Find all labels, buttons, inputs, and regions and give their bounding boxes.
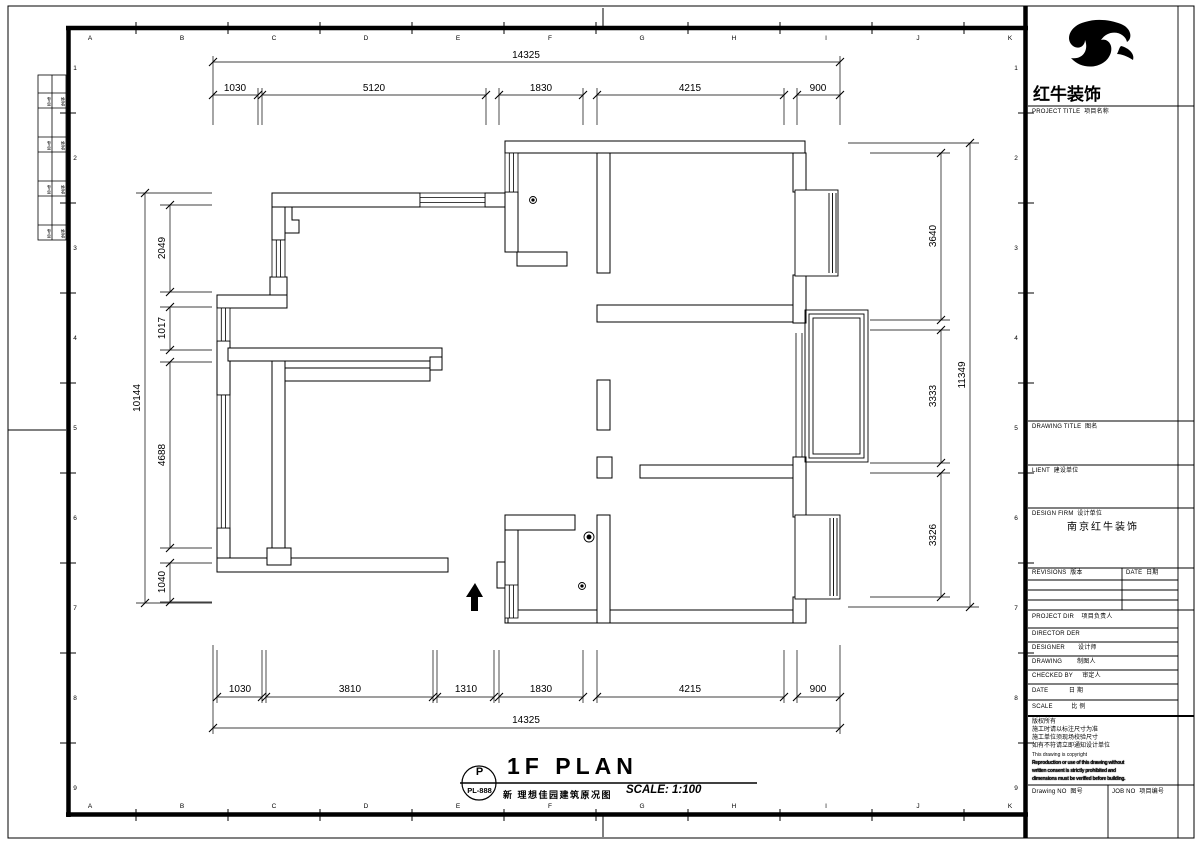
svg-text:900: 900: [810, 83, 827, 94]
copyright-line: 施工单位须现场校验尺寸: [1032, 735, 1098, 742]
project-dir-label: PROJECT DIR 项目负责人: [1032, 614, 1113, 621]
dimension-lines: [136, 56, 979, 734]
signature-cell: 姓名: [53, 94, 66, 108]
svg-text:E: E: [456, 803, 461, 810]
svg-text:4215: 4215: [679, 684, 702, 695]
svg-text:C: C: [272, 35, 277, 42]
title-block-lines: [1028, 6, 1194, 838]
grid-numbers-left: 1 2 3 4 5 6 7 8 9: [73, 65, 77, 792]
copyright-line: 如有不符请立即通知设计单位: [1032, 743, 1110, 750]
svg-text:J: J: [916, 803, 919, 810]
svg-text:G: G: [639, 803, 644, 810]
svg-text:1030: 1030: [229, 684, 252, 695]
svg-text:B: B: [180, 35, 184, 42]
svg-text:D: D: [364, 803, 369, 810]
bay-window-top-right: [795, 190, 838, 276]
plan-walls: [217, 141, 806, 623]
svg-text:B: B: [180, 803, 184, 810]
svg-text:3640: 3640: [928, 224, 939, 247]
scale-label: SCALE 比 例: [1032, 704, 1086, 711]
grid-numbers-right: 1 2 3 4 5 6 7 8 9: [1014, 65, 1018, 792]
svg-text:A: A: [88, 803, 93, 810]
signature-cell: 专业: [39, 138, 52, 152]
dimension-ticks: [141, 58, 974, 732]
copyright-line: written consent is strictly prohibited a…: [1032, 768, 1116, 775]
svg-text:5: 5: [1014, 425, 1018, 432]
dim-left-overall: 10144: [132, 384, 143, 412]
svg-text:3: 3: [1014, 245, 1018, 252]
grid-letters-top: A B C D E F G H I J K: [88, 35, 1013, 42]
svg-text:7: 7: [1014, 605, 1018, 612]
svg-text:4215: 4215: [679, 83, 702, 94]
drawing-title-label: DRAWING TITLE 图名: [1032, 424, 1097, 431]
signature-cell: 专业: [39, 94, 52, 108]
copyright-line: 版权所有: [1032, 719, 1056, 726]
svg-text:1310: 1310: [455, 684, 478, 695]
bay-window-bottom-right: [795, 515, 840, 599]
svg-text:K: K: [1008, 35, 1013, 42]
svg-text:H: H: [732, 803, 737, 810]
fold-marks: [8, 8, 603, 837]
svg-text:4688: 4688: [157, 443, 168, 466]
plan-title: 1F PLAN: [507, 753, 638, 780]
svg-text:I: I: [825, 35, 827, 42]
job-no-label: JOB NO 项目编号: [1112, 789, 1164, 796]
svg-text:G: G: [639, 35, 644, 42]
revision-date-label: DATE 日期: [1126, 570, 1159, 577]
balcony-middle-right: [805, 310, 868, 462]
director-label: DIRECTOR DER: [1032, 631, 1080, 638]
svg-text:1830: 1830: [530, 684, 553, 695]
stamp-code: PL-888: [461, 786, 498, 795]
svg-text:3326: 3326: [928, 523, 939, 546]
svg-text:1830: 1830: [530, 83, 553, 94]
svg-text:E: E: [456, 35, 461, 42]
svg-text:7: 7: [73, 605, 77, 612]
svg-text:J: J: [916, 35, 919, 42]
svg-text:6: 6: [1014, 515, 1018, 522]
scale-text: SCALE: 1:100: [626, 784, 701, 796]
svg-text:1017: 1017: [157, 316, 168, 339]
signature-cell: 姓名: [53, 182, 66, 196]
svg-text:H: H: [732, 35, 737, 42]
dim-right-overall: 11349: [957, 361, 968, 389]
copyright-line: 施工时请以标注尺寸为准: [1032, 727, 1098, 734]
svg-text:3: 3: [73, 245, 77, 252]
floor-plan: [217, 141, 868, 623]
copyright-line: dimensions must be verified before build…: [1032, 776, 1125, 783]
brand-name: 红牛装饰: [1030, 80, 1182, 105]
signature-cell: 专业: [39, 182, 52, 196]
svg-text:4: 4: [73, 335, 77, 342]
dim-bottom-overall: 14325: [512, 715, 540, 726]
drawing-no-label: Drawing NO 图号: [1032, 789, 1083, 796]
grid-letters-bottom: A B C D E F G H I J K: [88, 803, 1013, 810]
svg-text:1: 1: [1014, 65, 1018, 72]
signature-cell: 姓名: [53, 138, 66, 152]
svg-text:C: C: [272, 803, 277, 810]
svg-text:5120: 5120: [363, 83, 386, 94]
client-label: LIENT 建设单位: [1032, 468, 1078, 475]
svg-text:5: 5: [73, 425, 77, 432]
sheet-drawing: A B C D E F G H I J K A B C D E F G H I …: [0, 0, 1200, 844]
drawing-sheet: A B C D E F G H I J K A B C D E F G H I …: [0, 0, 1200, 844]
designer-label: DESIGNER 设计师: [1032, 645, 1097, 652]
svg-text:2: 2: [73, 155, 77, 162]
svg-text:1: 1: [73, 65, 77, 72]
svg-text:3333: 3333: [928, 384, 939, 407]
svg-text:8: 8: [1014, 695, 1018, 702]
svg-text:1030: 1030: [224, 83, 247, 94]
svg-text:6: 6: [73, 515, 77, 522]
svg-text:F: F: [548, 35, 552, 42]
svg-text:D: D: [364, 35, 369, 42]
svg-text:2049: 2049: [157, 236, 168, 259]
svg-text:9: 9: [1014, 785, 1018, 792]
svg-text:3810: 3810: [339, 684, 362, 695]
dim-top-overall: 14325: [512, 50, 540, 61]
svg-text:K: K: [1008, 803, 1013, 810]
svg-text:9: 9: [73, 785, 77, 792]
rednbull-logo-icon: [1055, 16, 1155, 78]
entry-arrow: [466, 583, 483, 611]
svg-text:8: 8: [73, 695, 77, 702]
plan-subtitle: 新 理想佳园建筑原况图: [503, 788, 612, 801]
svg-text:900: 900: [810, 684, 827, 695]
design-firm-value: 南京红牛装饰: [1028, 518, 1178, 533]
drawing-label: DRAWING 制图人: [1032, 659, 1096, 666]
checked-by-label: CHECKED BY 审定人: [1032, 673, 1101, 680]
signature-cell: 专业: [39, 226, 52, 240]
svg-text:I: I: [825, 803, 827, 810]
copyright-line: This drawing is copyright: [1032, 752, 1087, 759]
svg-text:1040: 1040: [157, 570, 168, 593]
design-firm-label: DESIGN FIRM 设计单位: [1032, 511, 1102, 518]
signature-cell: 姓名: [53, 226, 66, 240]
svg-text:2: 2: [1014, 155, 1018, 162]
copyright-line: Reproduction or use of this drawing with…: [1032, 760, 1124, 767]
svg-text:F: F: [548, 803, 552, 810]
svg-text:A: A: [88, 35, 93, 42]
date-label: DATE 日 期: [1032, 688, 1083, 695]
revisions-label: REVISIONS 版本: [1032, 570, 1083, 577]
project-title-label: PROJECT TITLE 项目名称: [1032, 109, 1109, 116]
svg-text:4: 4: [1014, 335, 1018, 342]
stamp-letter: P: [462, 766, 497, 778]
